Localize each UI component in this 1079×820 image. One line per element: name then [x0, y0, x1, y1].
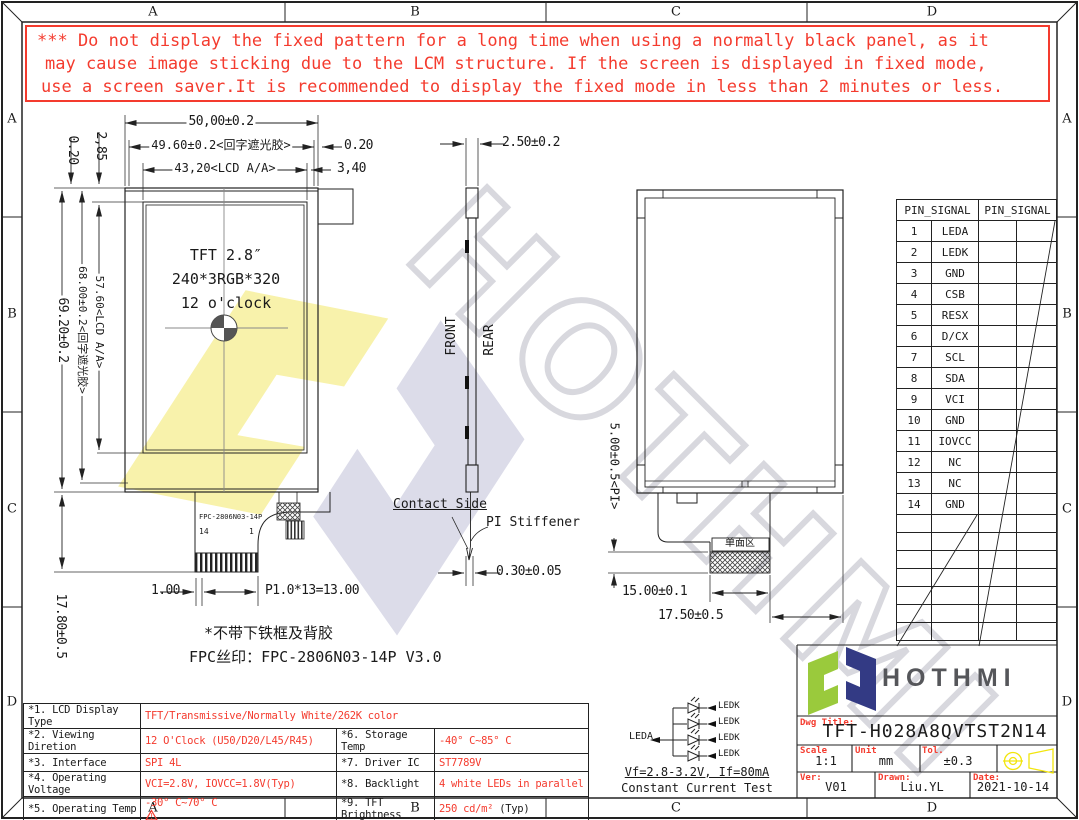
dim-width-aa: 43,20<LCD A/A>: [172, 162, 277, 175]
pin-row: 2LEDK: [897, 242, 1057, 263]
pin-row: 6D/CX: [897, 326, 1057, 347]
engineering-drawing-sheet: HOTHMI: [0, 0, 1079, 820]
pin-row-empty: [897, 569, 1057, 587]
pin-row-empty: [897, 623, 1057, 641]
warning-line-3: use a screen saver.It is recommended to …: [37, 76, 1048, 99]
zone-row-b-right: B: [1062, 307, 1072, 322]
pin-row: 1LEDA: [897, 221, 1057, 242]
ledk-label-1: LEDK: [718, 702, 740, 711]
spec-row: *4. Operating VoltageVCI=2.8V, IOVCC=1.8…: [24, 772, 589, 797]
fpc-pin1-label: 1: [249, 528, 254, 536]
front-view-outline: [125, 188, 353, 492]
zone-col-d-top: D: [927, 5, 937, 20]
led-icon: [688, 729, 716, 745]
zone-col-c-top: C: [671, 5, 681, 20]
backlight-test-label: Constant Current Test: [621, 782, 773, 795]
backlight-rating: Vf=2.8-3.2V, If=80mA: [625, 766, 770, 779]
pin-row: 8SDA: [897, 368, 1057, 389]
pin-signal-table: PIN_SIGNAL PIN_SIGNAL 1LEDA 2LEDK 3GND 4…: [896, 199, 1057, 641]
fpc-pin14-label: 14: [199, 528, 209, 536]
led-icon: [688, 745, 716, 761]
led-icon: [688, 697, 716, 713]
unit-value: mm: [879, 755, 893, 768]
zone-row-a-left: A: [7, 112, 16, 127]
front-label: FRONT: [445, 316, 459, 355]
ledk-label-3: LEDK: [718, 734, 740, 743]
dim-top-offset2: 0.20: [65, 136, 79, 165]
dim-fpc-thickness: 0.30±0.05: [496, 565, 561, 579]
spec-row: *2. Viewing Diretion12 O'Clock (U50/D20/…: [24, 729, 589, 754]
pin-row: 7SCL: [897, 347, 1057, 368]
dim-finger-margin: 1.00: [151, 584, 180, 598]
warning-triangle-icon: !: [145, 809, 158, 820]
spec-row: *5. Operating Temp -30° C~70° C ! *9. TF…: [24, 797, 589, 820]
dim-fpc-drop: 17.80±0.5: [53, 593, 67, 658]
pin-row: 9VCI: [897, 389, 1057, 410]
pin-row-empty: [897, 533, 1057, 551]
tol-value: ±0.3: [944, 755, 973, 768]
ledk-label-4: LEDK: [718, 750, 740, 759]
projection-symbol-icon: [1003, 749, 1053, 773]
dim-top-offset1: 2,85: [93, 132, 107, 161]
warning-note: *** Do not display the fixed pattern for…: [25, 25, 1050, 102]
spec-row: *3. InterfaceSPI 4L *7. Driver ICST7789V: [24, 754, 589, 772]
contact-side-label: Contact Side: [393, 498, 487, 512]
dwg-title-value: TFT-H028A8QVTST2N14: [823, 723, 1048, 742]
note-no-frame: *不带下铁框及背胶: [204, 626, 333, 642]
spec-value: TFT/Transmissive/Normally White/262K col…: [141, 704, 589, 729]
pin-row: 10GND: [897, 410, 1057, 431]
hothmi-logo-icon: [808, 647, 876, 715]
zone-row-d-left: D: [7, 695, 17, 710]
rear-view-outline: [637, 190, 843, 573]
dim-height-outer: 69.20±0.2: [55, 295, 69, 364]
dim-fpc-offset: 17.50±0.5: [658, 609, 723, 623]
ver-label: Ver:: [800, 773, 822, 783]
backlight-circuit: [650, 697, 716, 761]
unit-label: Unit: [855, 746, 877, 756]
date-value: 2021-10-14: [977, 781, 1049, 794]
panel-resolution-label: 240*3RGB*320: [172, 272, 280, 288]
dim-finger-pitch: P1.0*13=13.00: [265, 584, 359, 598]
pin-table-header-left: PIN_SIGNAL: [897, 200, 979, 221]
dim-width-outer: 50,00±0.2: [186, 115, 255, 129]
ver-value: V01: [825, 781, 847, 794]
dim-width-mask: 49.60±0.2<回字遮光胶>: [149, 139, 292, 152]
pin-row-empty: [897, 605, 1057, 623]
warning-line-2: may cause image sticking due to the LCM …: [37, 53, 1048, 76]
dim-thickness: 2.50±0.2: [502, 136, 560, 150]
pin-row: 4CSB: [897, 284, 1057, 305]
pin-table-header-right: PIN_SIGNAL: [979, 200, 1057, 221]
warning-line-1: *** Do not display the fixed pattern for…: [37, 30, 1048, 53]
panel-size-label: TFT 2.8″: [190, 248, 262, 264]
zone-row-d-right: D: [1062, 695, 1072, 710]
zone-col-b-top: B: [410, 5, 420, 20]
scale-value: 1:1: [815, 755, 837, 768]
zone-row-a-right: A: [1062, 112, 1071, 127]
pin-row: 12NC: [897, 452, 1057, 473]
dim-pi: 5.00±0.5<PI>: [608, 423, 621, 510]
pin-row: 3GND: [897, 263, 1057, 284]
ledk-label-2: LEDK: [718, 718, 740, 727]
pin-row: 13NC: [897, 473, 1057, 494]
zone-row-c-right: C: [1062, 502, 1072, 517]
spec-row: *1. LCD Display Type TFT/Transmissive/No…: [24, 704, 589, 729]
spec-label: *1. LCD Display Type: [24, 704, 141, 729]
pin-row: 11IOVCC: [897, 431, 1057, 452]
dim-height-mask: 68.00±0.2<回字遮光胶>: [76, 264, 88, 396]
svg-text:!: !: [149, 812, 154, 820]
drawn-value: Liu.YL: [900, 781, 943, 794]
pin-row: 14GND: [897, 494, 1057, 515]
zone-col-c-bottom: C: [671, 801, 681, 816]
center-mark-icon: [211, 315, 237, 341]
dim-mask-gap: 0.20: [344, 139, 373, 153]
dim-aa-gap: 3,40: [337, 162, 366, 176]
rear-label: REAR: [483, 324, 497, 355]
pin-row: 5RESX: [897, 305, 1057, 326]
zone-row-b-left: B: [7, 307, 17, 322]
zone-col-d-bottom: D: [927, 801, 937, 816]
zone-col-a-top: A: [148, 5, 157, 20]
dim-fpc-width: 15.00±0.1: [622, 585, 687, 599]
front-fpc-outline: [195, 492, 330, 572]
fpc-silk-label: FPC-2806N03-14P: [199, 514, 262, 521]
tol-label: Tol.: [922, 746, 944, 756]
note-fpc-silk: FPC丝印：FPC-2806N03-14P V3.0: [189, 650, 442, 666]
spec-table: *1. LCD Display Type TFT/Transmissive/No…: [23, 703, 589, 820]
zone-row-c-left: C: [7, 502, 17, 517]
pin-row-empty: [897, 551, 1057, 569]
brand-logotype: HOTHMI: [882, 664, 1017, 693]
pin-row-empty: [897, 587, 1057, 605]
pi-stiffener-label: PI Stiffener: [486, 516, 580, 530]
leda-label: LEDA: [629, 732, 653, 743]
dim-height-aa: 57.60<LCD A/A>: [93, 274, 105, 371]
pin-row-empty: [897, 515, 1057, 533]
led-icon: [688, 713, 716, 729]
panel-viewing-label: 12 o'clock: [181, 296, 271, 312]
single-side-area-label: 单面区: [725, 539, 755, 550]
